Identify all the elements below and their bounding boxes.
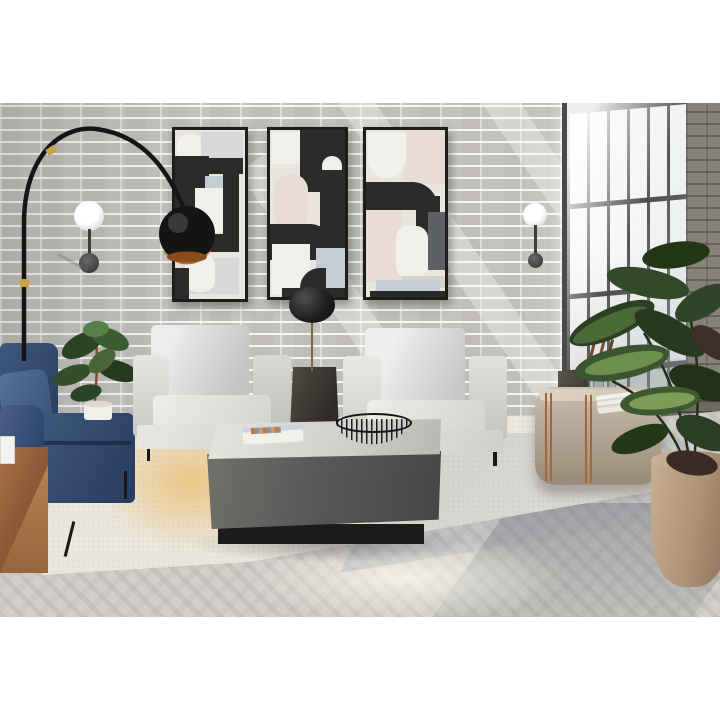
white-card [0, 436, 15, 464]
chair-left-leg-1 [147, 449, 150, 461]
potted-plant-large [552, 213, 720, 478]
magazine-cover-art [251, 427, 281, 435]
wood-cube-facet [0, 465, 48, 573]
sofa-bench-cushion-line [40, 441, 132, 445]
wood-cube-side-table [0, 447, 48, 573]
living-room-photo [0, 0, 720, 720]
lamp-sphere [289, 287, 335, 323]
table-lamp-black-sphere [288, 287, 336, 371]
magazine [243, 424, 304, 444]
chair-right-leg-2 [493, 452, 497, 466]
arc-floor-lamp [0, 103, 260, 403]
wire-bowl [336, 413, 408, 451]
bottom-white-band [0, 617, 720, 720]
photo-area [0, 103, 720, 617]
top-white-band [0, 0, 720, 103]
lamp-stem [311, 319, 313, 371]
wall-sconce-right [518, 203, 552, 273]
wall-art-panel-right [363, 127, 448, 300]
sofa-leg-right [124, 471, 127, 499]
sconce-mount-right [528, 253, 543, 268]
coffee-table-front [207, 451, 441, 529]
wall-art-panel-center [267, 127, 348, 300]
sofa-leg-front [64, 521, 76, 557]
console-brass-strip-1 [545, 393, 547, 481]
sofa-bench [34, 413, 135, 503]
wire-bowl-rim [336, 413, 412, 433]
sconce-globe-right [523, 203, 547, 227]
